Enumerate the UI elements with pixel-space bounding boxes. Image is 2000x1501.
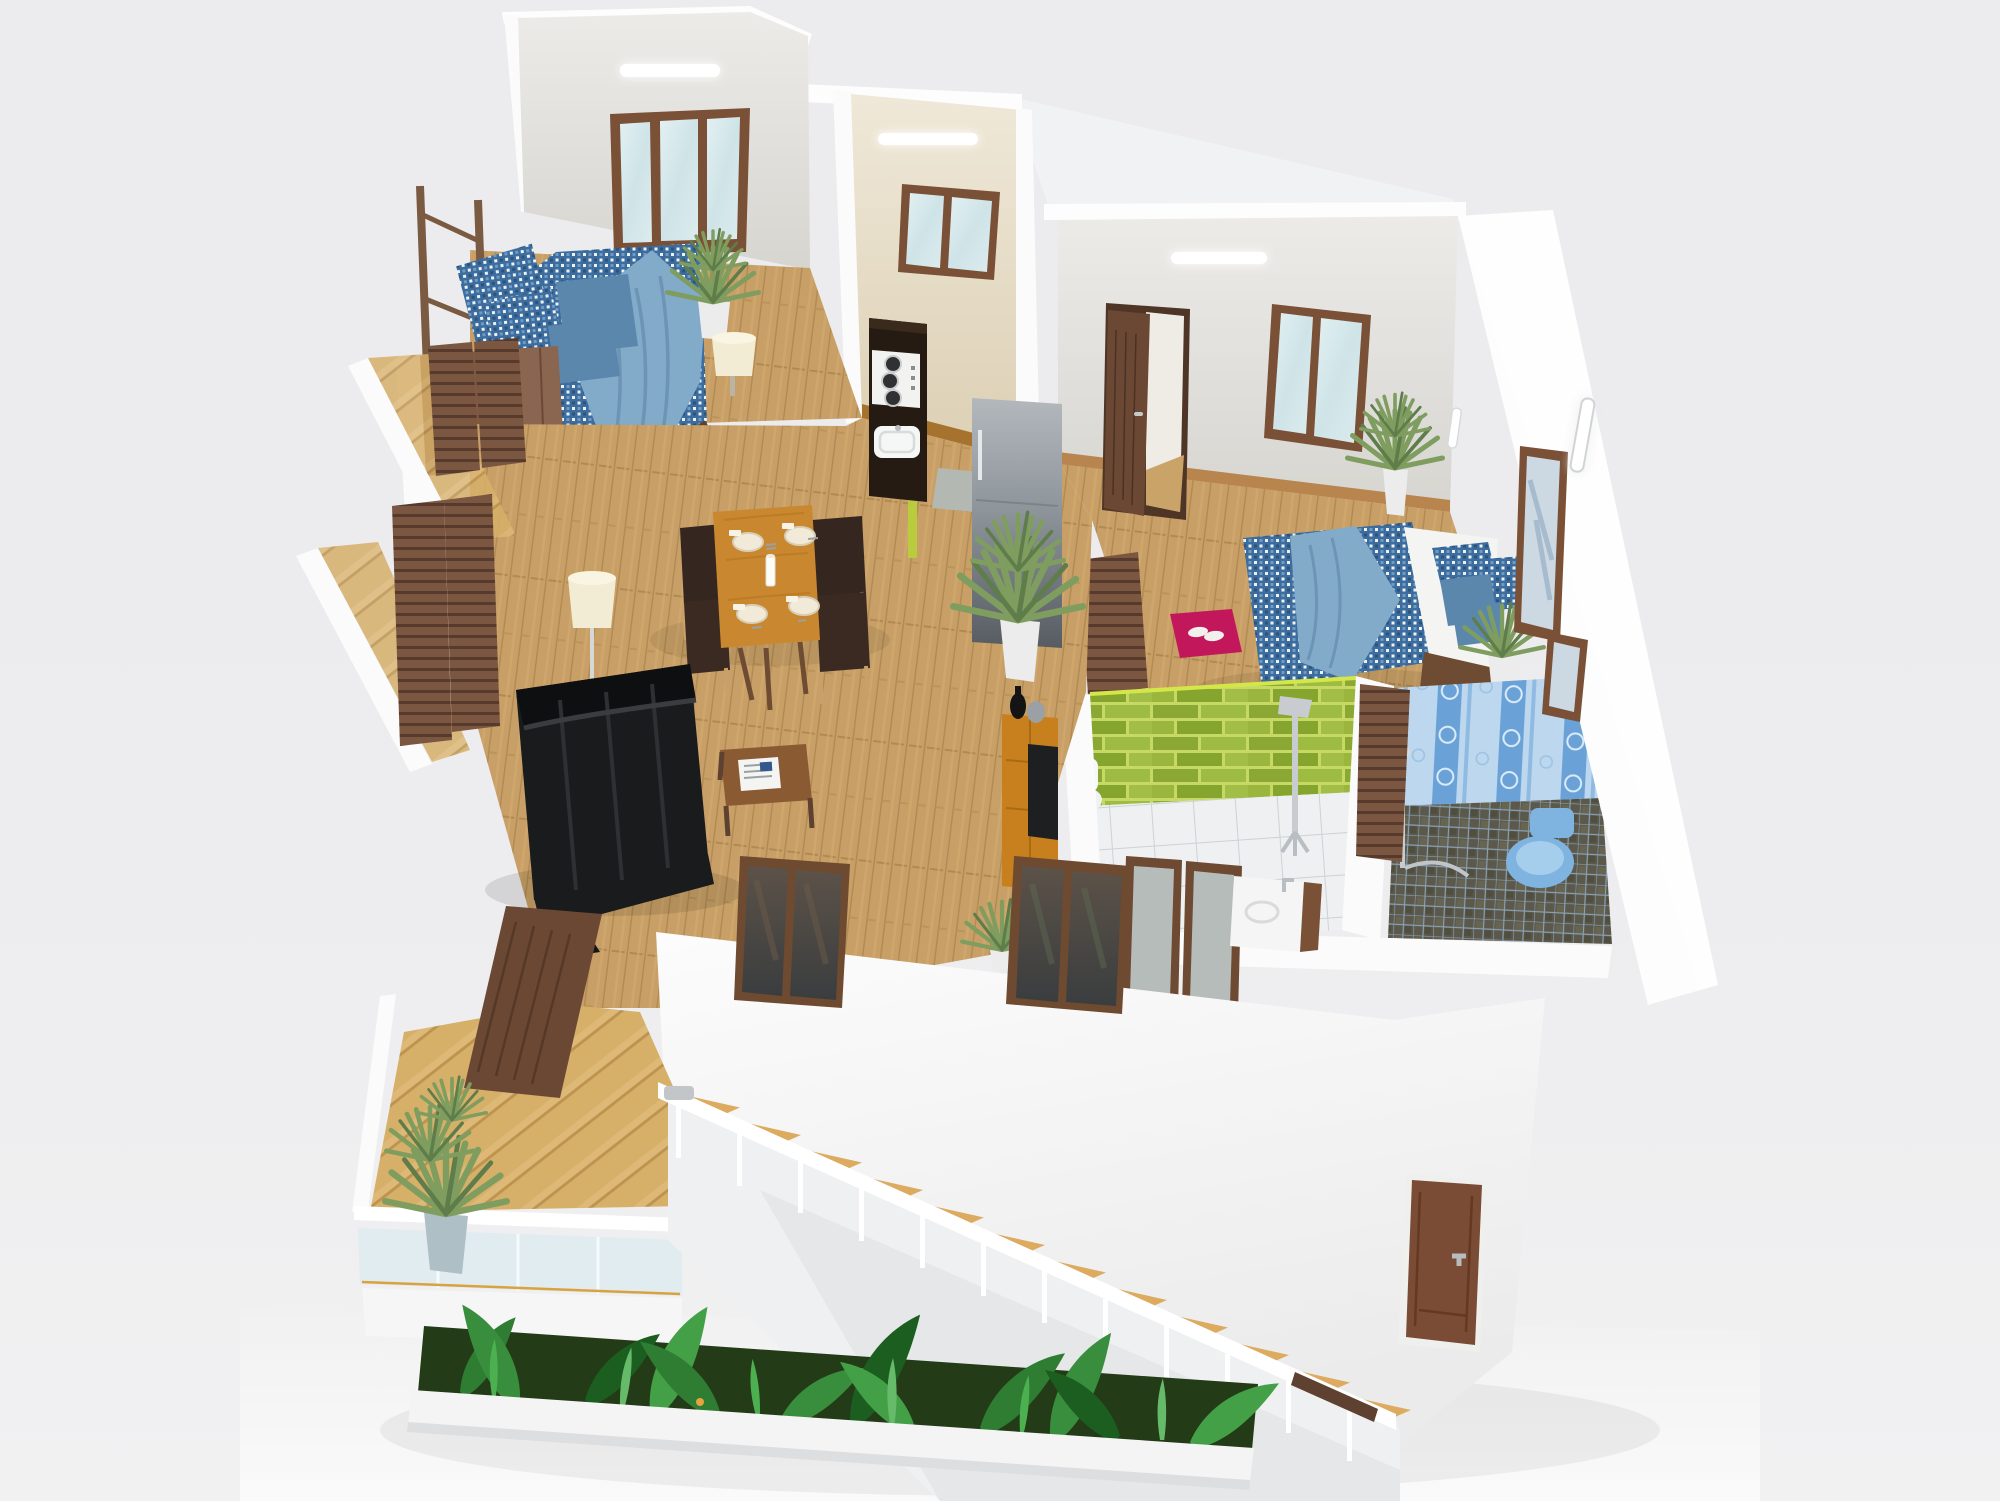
- floor-plan-render: [0, 0, 2000, 1501]
- counter-top: [1230, 876, 1304, 952]
- bedroom2-door: [1102, 303, 1190, 520]
- window-glass: [620, 122, 652, 243]
- green-tile-wall: [1090, 678, 1356, 806]
- hob-knobs: [911, 366, 915, 390]
- newspaper: [738, 757, 781, 791]
- floor-plan-stage: [0, 0, 2000, 1501]
- bedroom1-window: [610, 108, 750, 254]
- gas-hob: [872, 350, 920, 408]
- plant-pot: [1383, 468, 1408, 516]
- plant-pot-bluegray: [424, 1212, 468, 1274]
- louver-screen: [428, 342, 480, 476]
- toilet-tank: [1530, 808, 1574, 838]
- kitchen-sink: [874, 425, 920, 458]
- window-glass: [1314, 318, 1362, 443]
- wood-partition: [1356, 684, 1410, 862]
- glass-door-pane: [1190, 871, 1234, 1004]
- bedroom2-window: [1264, 304, 1371, 452]
- wood-partition: [1080, 552, 1148, 696]
- window-glass: [948, 197, 992, 272]
- handrail-start-cap: [664, 1086, 694, 1100]
- bedroom2-rug: [1170, 609, 1242, 658]
- window-glass: [660, 119, 698, 241]
- door-handle: [1134, 412, 1143, 416]
- window-glass: [707, 117, 740, 240]
- louver-screen: [444, 494, 500, 732]
- entry-door: [1398, 1174, 1488, 1352]
- lamp-shade-top: [568, 571, 616, 585]
- window-glass-dark: [1016, 866, 1064, 1002]
- tv: [1028, 744, 1058, 840]
- ceiling-light: [878, 133, 978, 145]
- lamp-shade: [568, 578, 616, 628]
- louver-screen: [474, 338, 526, 468]
- kitchen-window: [898, 184, 1000, 280]
- plant-pot: [1000, 618, 1040, 682]
- fridge-handle: [978, 430, 982, 480]
- window-glass-dark: [742, 866, 788, 996]
- gas-burner: [882, 356, 901, 406]
- window-glass: [906, 193, 944, 268]
- front-window: [734, 856, 850, 1008]
- ceiling-light: [620, 64, 720, 77]
- door-leaf: [1104, 310, 1150, 516]
- lamp-shade-top: [712, 332, 756, 344]
- table-candle: [766, 554, 775, 586]
- vase-gray: [1027, 701, 1045, 723]
- front-window: [1006, 856, 1130, 1014]
- kitchen-counter: [869, 318, 927, 502]
- louver-screen: [392, 500, 452, 746]
- toilet-seat: [1516, 841, 1564, 875]
- shower-pipe: [1292, 712, 1298, 832]
- glass-door-pane: [1130, 866, 1174, 998]
- sink-faucet: [895, 425, 901, 431]
- planter-flower: [696, 1398, 704, 1406]
- sink-counter: [1230, 876, 1322, 952]
- ceiling-light: [1171, 252, 1267, 264]
- mosaic-floor: [1388, 798, 1612, 944]
